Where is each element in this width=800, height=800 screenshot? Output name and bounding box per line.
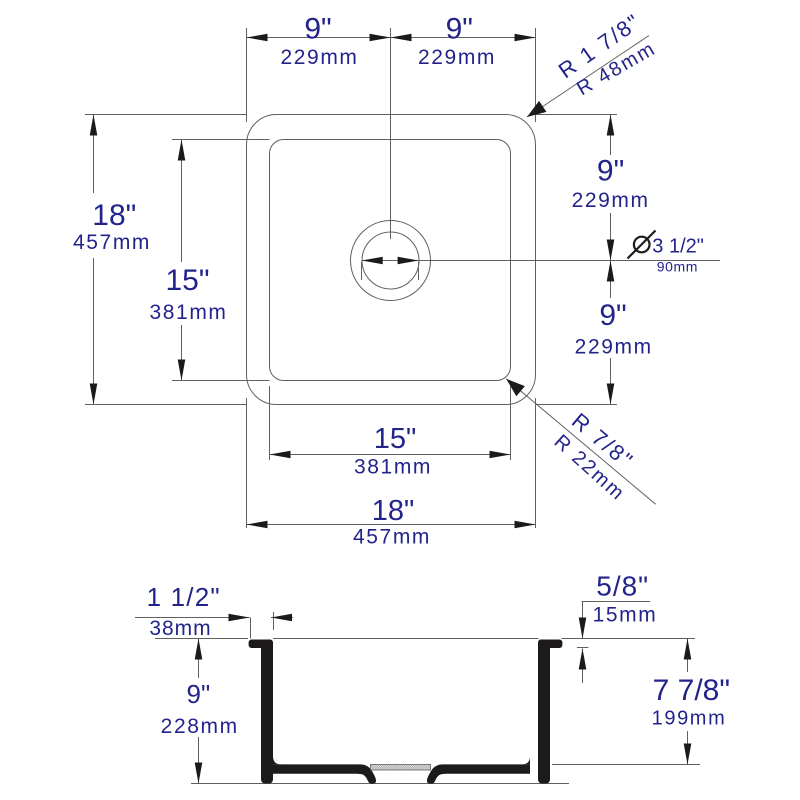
svg-text:15": 15" — [374, 423, 417, 455]
svg-text:9": 9" — [599, 299, 626, 332]
svg-text:90mm: 90mm — [657, 259, 698, 275]
svg-text:9": 9" — [446, 13, 473, 46]
svg-text:7 7/8": 7 7/8" — [653, 674, 730, 707]
svg-text:18": 18" — [92, 199, 136, 232]
svg-text:229mm: 229mm — [575, 336, 653, 359]
svg-text:457mm: 457mm — [73, 231, 151, 254]
svg-text:18": 18" — [372, 495, 415, 527]
svg-text:15mm: 15mm — [593, 603, 658, 626]
svg-text:1 1/2": 1 1/2" — [147, 582, 221, 612]
svg-text:3 1/2": 3 1/2" — [652, 236, 704, 258]
svg-text:15": 15" — [165, 264, 209, 297]
svg-text:229mm: 229mm — [280, 46, 358, 69]
svg-text:381mm: 381mm — [149, 301, 227, 324]
svg-text:381mm: 381mm — [354, 456, 432, 479]
svg-text:229mm: 229mm — [418, 46, 496, 69]
svg-text:229mm: 229mm — [572, 189, 650, 212]
svg-text:5/8": 5/8" — [596, 571, 649, 602]
svg-text:38mm: 38mm — [149, 617, 211, 640]
svg-text:199mm: 199mm — [652, 707, 727, 729]
svg-text:457mm: 457mm — [353, 526, 431, 549]
svg-text:228mm: 228mm — [161, 715, 239, 738]
svg-text:9": 9" — [597, 155, 624, 188]
svg-text:9": 9" — [304, 13, 331, 46]
svg-text:9": 9" — [187, 679, 211, 709]
